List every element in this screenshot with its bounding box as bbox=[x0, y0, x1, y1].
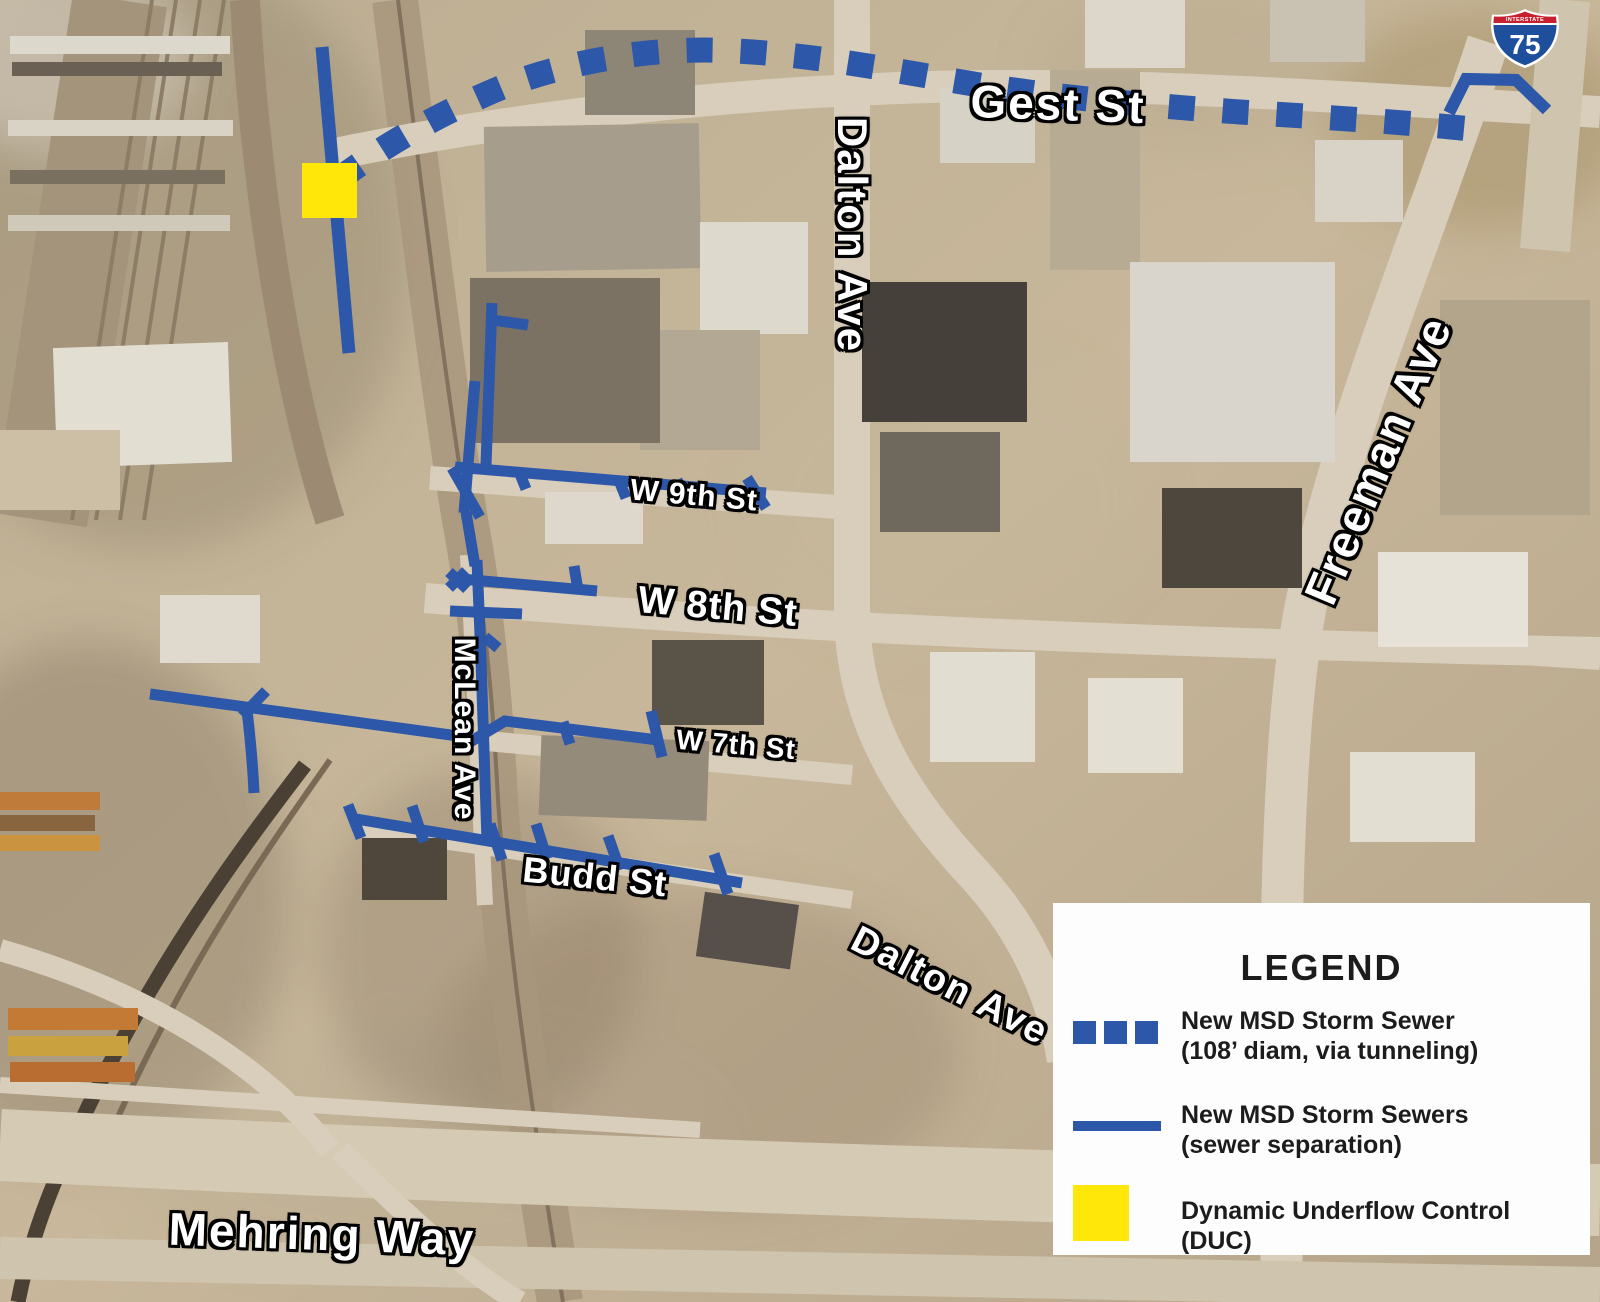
legend-panel: LEGEND New MSD Storm Sewer (108’ diam, v… bbox=[1053, 903, 1590, 1255]
interstate-75-shield: INTERSTATE 75 bbox=[1488, 8, 1562, 70]
tunnel-sewer-dashed-line bbox=[338, 50, 1480, 180]
shield-number: 75 bbox=[1509, 29, 1540, 60]
legend-item-label: Dynamic Underflow Control (DUC) bbox=[1181, 1197, 1510, 1256]
street-label-mclean-ave: McLean Ave bbox=[449, 638, 479, 821]
legend-item-label: New MSD Storm Sewers (sewer separation) bbox=[1181, 1101, 1469, 1160]
shield-banner-text: INTERSTATE bbox=[1506, 17, 1544, 23]
sewer-lines-w9th bbox=[452, 303, 766, 566]
sewer-lines-w7th bbox=[150, 691, 662, 793]
street-label-mehring-way: Mehring Way bbox=[168, 1206, 476, 1263]
sewer-line-gest-east bbox=[1449, 79, 1547, 113]
storm-sewer-project-map: Gest St Dalton Ave Freeman Ave W 9th St … bbox=[0, 0, 1600, 1302]
sewer-lines-w8th bbox=[449, 566, 597, 648]
solid-line-swatch bbox=[1073, 1121, 1169, 1131]
yellow-square-swatch bbox=[1073, 1185, 1169, 1241]
legend-title: LEGEND bbox=[1053, 947, 1590, 989]
duc-marker bbox=[302, 163, 357, 218]
street-label-gest-st: Gest St bbox=[970, 78, 1147, 130]
street-label-dalton-ave-north: Dalton Ave bbox=[831, 117, 873, 353]
dashed-line-swatch bbox=[1073, 1021, 1169, 1044]
legend-item-label: New MSD Storm Sewer (108’ diam, via tunn… bbox=[1181, 1007, 1478, 1066]
